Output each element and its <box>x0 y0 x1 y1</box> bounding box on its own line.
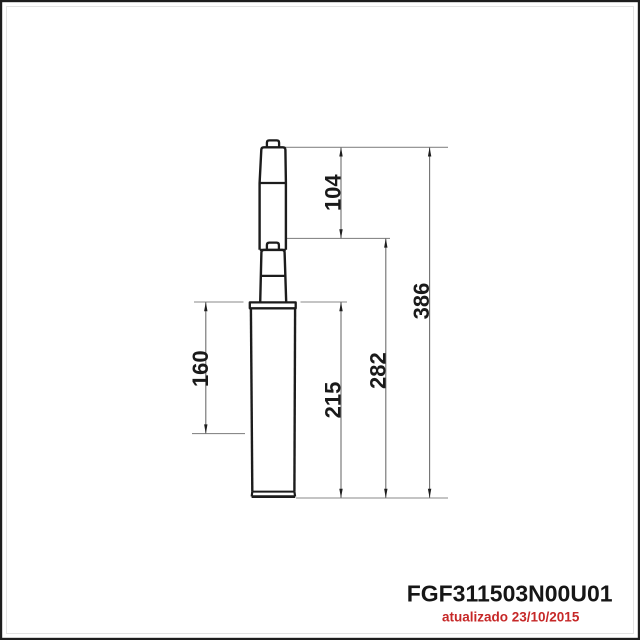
svg-text:104: 104 <box>321 174 346 211</box>
svg-text:282: 282 <box>365 352 390 389</box>
svg-text:atualizado 23/10/2015: atualizado 23/10/2015 <box>442 610 580 625</box>
svg-text:FGF311503N00U01: FGF311503N00U01 <box>407 580 613 606</box>
svg-text:160: 160 <box>188 350 213 387</box>
svg-text:215: 215 <box>321 382 346 419</box>
svg-text:386: 386 <box>409 283 434 320</box>
